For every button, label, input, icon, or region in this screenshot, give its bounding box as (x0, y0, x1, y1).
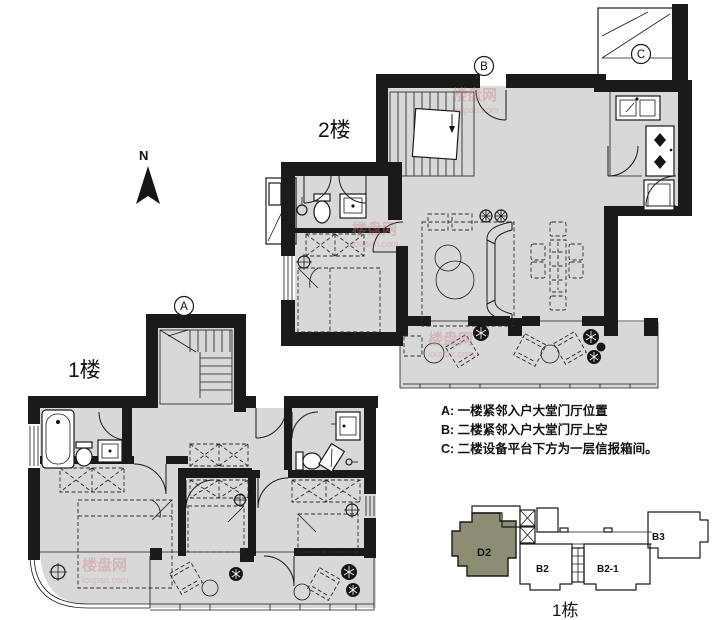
marker-c-label: C (637, 49, 645, 61)
svg-text:楼盘网: 楼盘网 (352, 220, 397, 238)
unit-d2-label: D2 (477, 547, 491, 559)
keyplan: D2 B2 B2-1 B3 1栋 (452, 506, 708, 620)
marker-a: A (175, 297, 194, 316)
marker-a-label: A (180, 301, 188, 313)
watermark: 楼盘网 loupan.com (352, 220, 399, 249)
keyplan-stair-shaft (572, 548, 584, 582)
svg-text:loupan.com: loupan.com (82, 575, 129, 585)
watermark: 楼盘网 loupan.com (428, 330, 475, 359)
keyplan-lobby (537, 508, 558, 532)
floor1-label: 1楼 (68, 359, 101, 382)
notes-block: A: 一楼紧邻入户大堂门厅位置 B: 二楼紧邻入户大堂门厅上空 C: 二楼设备平… (441, 403, 658, 456)
floor1-left-window (30, 426, 38, 466)
elevator-icon (520, 510, 535, 543)
keyplan-caption: 1栋 (552, 601, 578, 620)
toilet-icon (76, 442, 92, 466)
note-line-c: C: 二楼设备平台下方为一层信报箱间。 (441, 441, 658, 456)
sink-icon (98, 440, 122, 462)
svg-text:loupan.com: loupan.com (352, 239, 399, 249)
north-label: N (139, 148, 148, 163)
svg-text:loupan.com: loupan.com (428, 349, 475, 359)
unit-d2-shape (452, 513, 516, 576)
plant-icon (229, 567, 243, 581)
keyplan-corridor (537, 532, 652, 544)
svg-text:楼盘网: 楼盘网 (428, 330, 473, 348)
north-arrow-icon: N (136, 148, 160, 204)
marker-b: B (475, 57, 494, 76)
unit-b3-label: B3 (652, 532, 665, 543)
floor2-left-window (284, 256, 292, 300)
floorplan-page: N A B C 2楼 1楼 A: 一楼紧邻入户大堂门厅位置 B: 二楼紧邻入户大… (0, 0, 728, 620)
bathtub-icon (42, 410, 74, 468)
toilet-icon (314, 194, 330, 223)
svg-text:楼盘网: 楼盘网 (452, 86, 497, 104)
floorplan-canvas: N A B C 2楼 1楼 A: 一楼紧邻入户大堂门厅位置 B: 二楼紧邻入户大… (0, 0, 728, 620)
plant-icon (473, 325, 489, 341)
stove-icon (646, 126, 674, 176)
marker-b-label: B (480, 61, 488, 73)
svg-text:loupan.com: loupan.com (452, 105, 499, 115)
watermark: 楼盘网 loupan.com (452, 86, 499, 115)
unit-b2-1-label: B2-1 (597, 564, 619, 575)
unit-b2-label: B2 (536, 564, 549, 575)
toilet-icon (296, 452, 321, 470)
svg-text:楼盘网: 楼盘网 (82, 556, 127, 574)
marker-c: C (632, 45, 651, 64)
note-line-a: A: 一楼紧邻入户大堂门厅位置 (441, 403, 608, 418)
note-line-b: B: 二楼紧邻入户大堂门厅上空 (441, 422, 608, 437)
floor2-label: 2楼 (318, 119, 351, 142)
kitchen-sink-icon (616, 96, 660, 120)
watermark: 楼盘网 loupan.com (82, 556, 129, 585)
sink-icon (340, 194, 366, 218)
